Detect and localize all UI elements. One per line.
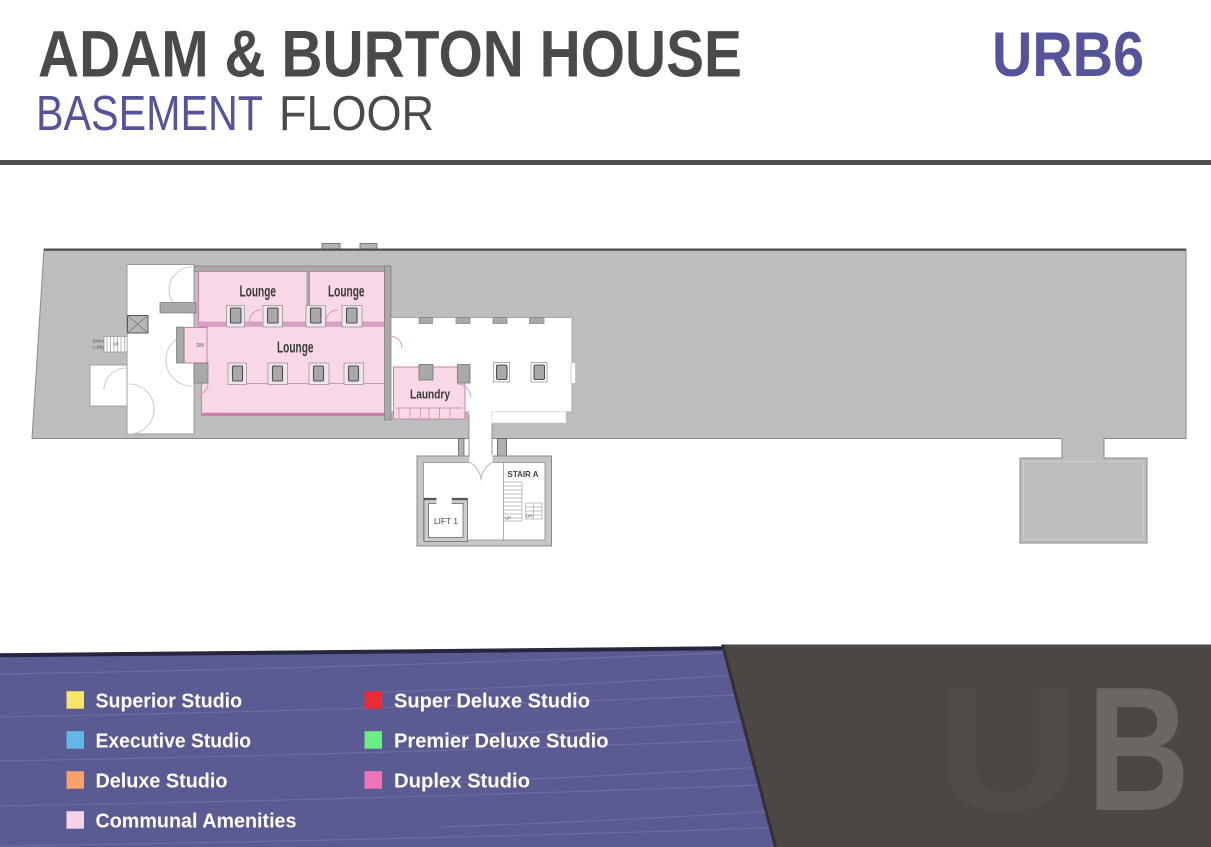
svg-text:DN: DN bbox=[526, 514, 533, 519]
svg-text:LIFT 1: LIFT 1 bbox=[434, 517, 459, 526]
svg-text:BASEMENT: BASEMENT bbox=[36, 87, 263, 141]
svg-text:FLOOR: FLOOR bbox=[279, 87, 434, 141]
svg-text:Duplex Studio: Duplex Studio bbox=[394, 770, 530, 793]
svg-text:ADAM & BURTON HOUSE: ADAM & BURTON HOUSE bbox=[38, 17, 742, 91]
svg-text:B: B bbox=[1087, 650, 1190, 847]
svg-text:UP: UP bbox=[505, 516, 511, 521]
svg-text:Lounge: Lounge bbox=[328, 284, 365, 301]
svg-text:Lounge: Lounge bbox=[240, 284, 277, 301]
svg-text:Superior Studio: Superior Studio bbox=[96, 690, 243, 713]
svg-text:URB6: URB6 bbox=[992, 20, 1144, 90]
svg-text:Laundry: Laundry bbox=[410, 388, 450, 402]
svg-text:DN: DN bbox=[197, 343, 205, 349]
svg-text:Deluxe Studio: Deluxe Studio bbox=[96, 770, 228, 793]
svg-text:Super Deluxe Studio: Super Deluxe Studio bbox=[394, 690, 590, 713]
svg-text:Bin/In: Bin/In bbox=[93, 339, 104, 344]
svg-text:Premier Deluxe Studio: Premier Deluxe Studio bbox=[394, 730, 609, 753]
svg-text:STAIR A: STAIR A bbox=[508, 469, 539, 479]
svg-text:U: U bbox=[935, 650, 1080, 847]
svg-text:Lift: Lift bbox=[113, 342, 119, 347]
svg-text:Lounge: Lounge bbox=[277, 340, 314, 357]
svg-text:Lobby: Lobby bbox=[93, 345, 105, 350]
svg-text:Executive Studio: Executive Studio bbox=[96, 730, 252, 753]
svg-text:Communal Amenities: Communal Amenities bbox=[96, 810, 297, 833]
